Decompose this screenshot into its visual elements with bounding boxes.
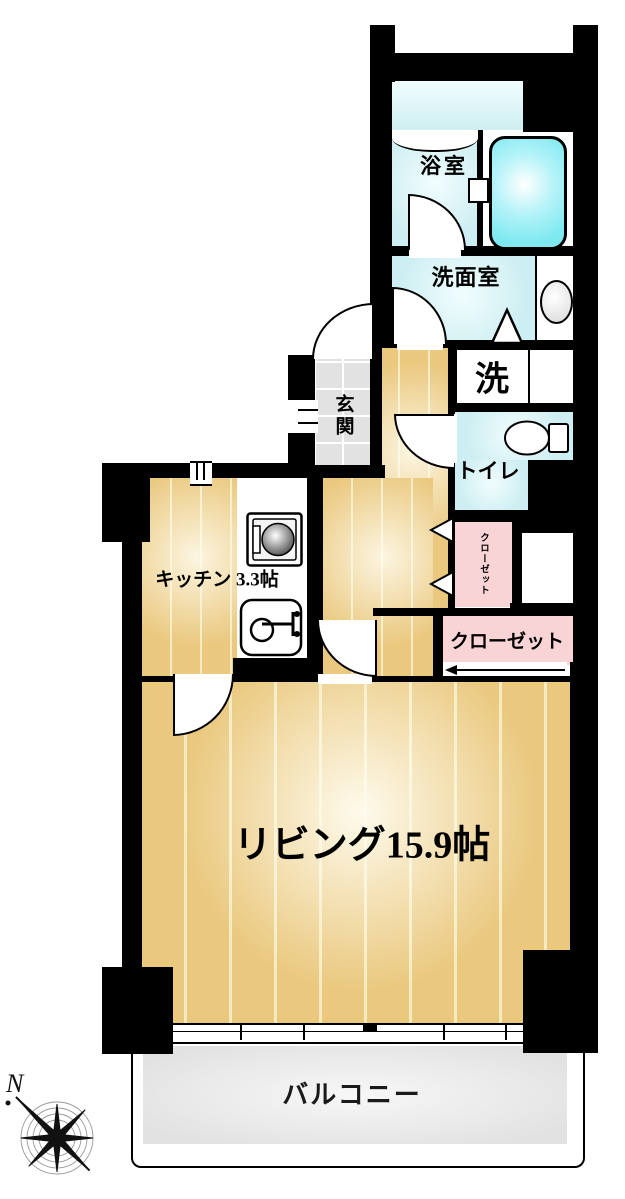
- folding-door-icon: [428, 514, 455, 602]
- laundry-label: 洗: [475, 352, 509, 401]
- bathtub-icon: [489, 136, 567, 250]
- wall-pillar: [102, 967, 173, 1054]
- wall: [373, 608, 598, 616]
- kitchen-sink-icon: [239, 598, 305, 658]
- wall: [370, 348, 382, 467]
- wall: [233, 658, 310, 676]
- wall: [150, 463, 297, 478]
- washroom-label: 洗面室: [431, 260, 500, 292]
- balcony-window-lock: [363, 1023, 377, 1032]
- wall: [288, 433, 315, 467]
- window-tick: [298, 409, 318, 411]
- wall: [102, 463, 150, 542]
- floorplan-canvas: N 浴室 洗面室 洗 トイレ 玄関 キッチン 3.3帖 クローゼット クローゼッ…: [0, 0, 625, 1199]
- wall: [455, 403, 598, 412]
- shower-unit-icon: [468, 178, 489, 203]
- entrance-door-arc: [312, 303, 374, 359]
- wall: [570, 662, 598, 952]
- toilet-icon: [500, 418, 572, 458]
- kitchen-label: キッチン 3.3帖: [155, 565, 279, 592]
- wall: [307, 467, 323, 676]
- window-tick: [196, 463, 198, 480]
- wall: [512, 533, 522, 607]
- wall: [433, 616, 443, 676]
- bath-upper-strip: [392, 80, 523, 132]
- hall-closet-label: クローゼット: [476, 533, 490, 596]
- washbasin-icon: [540, 280, 573, 324]
- balcony-label: バルコニー: [282, 1075, 421, 1112]
- washstand-triangle-icon: [485, 305, 527, 345]
- living-label: リビング15.9帖: [234, 814, 491, 869]
- wall: [122, 542, 142, 972]
- window-tick: [298, 422, 318, 424]
- toilet-label: トイレ: [457, 455, 520, 485]
- stove-icon: [246, 512, 303, 567]
- balcony-window-mullion: [303, 1023, 305, 1040]
- wall: [523, 80, 573, 132]
- balcony-window-track: [173, 1031, 523, 1032]
- wall: [528, 460, 598, 512]
- wall: [288, 355, 315, 400]
- balcony-window: [173, 1023, 523, 1044]
- wall: [512, 522, 598, 533]
- bathroom-label: 浴室: [420, 150, 468, 180]
- balcony-window-mullion: [505, 1023, 507, 1040]
- compass-north-label: N: [5, 1069, 25, 1098]
- balcony-window-mullion: [443, 1023, 445, 1040]
- wall: [370, 53, 598, 81]
- sliding-door-arrow-icon: [443, 664, 567, 676]
- compass-rose-icon: N: [0, 1056, 110, 1199]
- living-closet-label: クローゼット: [450, 627, 564, 654]
- entrance-label: 玄関: [330, 394, 357, 438]
- laundry-side-space: [528, 348, 576, 407]
- window-tick: [203, 463, 205, 480]
- entrance-side-window: [288, 400, 318, 433]
- kitchen-window: [190, 461, 212, 486]
- balcony-window-mullion: [240, 1023, 242, 1040]
- wall-pillar: [523, 950, 598, 1053]
- wall: [448, 510, 598, 522]
